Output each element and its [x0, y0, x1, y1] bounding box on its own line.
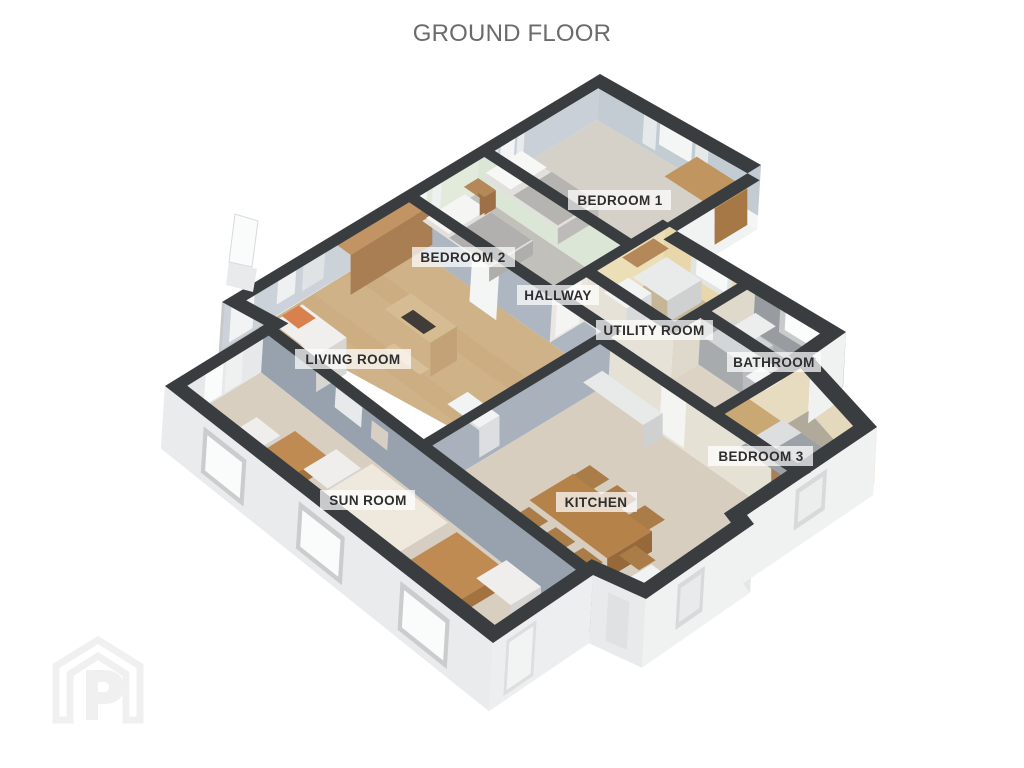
svg-text:BEDROOM 3: BEDROOM 3 — [718, 449, 803, 464]
svg-text:BATHROOM: BATHROOM — [733, 355, 815, 370]
svg-text:SUN ROOM: SUN ROOM — [329, 493, 406, 508]
svg-text:BEDROOM 1: BEDROOM 1 — [577, 193, 662, 208]
svg-text:KITCHEN: KITCHEN — [565, 495, 628, 510]
svg-text:HALLWAY: HALLWAY — [524, 288, 592, 303]
svg-text:BEDROOM 2: BEDROOM 2 — [420, 250, 505, 265]
svg-text:UTILITY ROOM: UTILITY ROOM — [603, 323, 704, 338]
svg-text:LIVING ROOM: LIVING ROOM — [305, 352, 400, 367]
